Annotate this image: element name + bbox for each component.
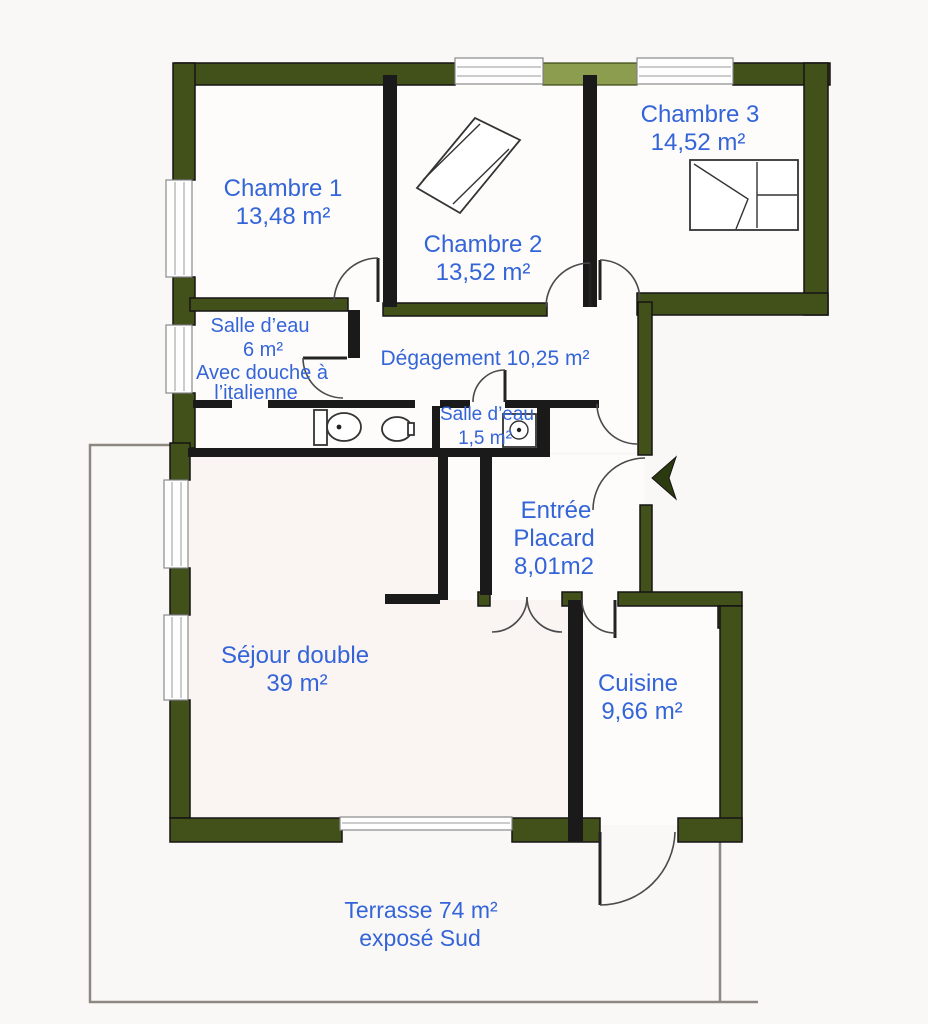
room-note2-salle-deau-6: l’italienne: [214, 382, 297, 404]
room-label-chambre2: Chambre 2: [424, 231, 543, 258]
room-area-salle-deau-15: 1,5 m²: [458, 428, 512, 449]
room-area-cuisine: 9,66 m²: [601, 698, 682, 725]
room-label-chambre1: Chambre 1: [224, 175, 343, 202]
room-label-placard: Placard: [513, 525, 594, 552]
floor-plan: Chambre 1 13,48 m² Chambre 2 13,52 m² Ch…: [0, 0, 928, 1024]
room-label-chambre3: Chambre 3: [641, 101, 760, 128]
room-label-entree: Entrée: [521, 497, 592, 524]
room-note-terrasse: exposé Sud: [359, 925, 480, 951]
bed-icon: [690, 160, 798, 230]
room-label-salle-deau-15: Salle d’eau: [440, 404, 534, 425]
room-area-chambre2: 13,52 m²: [436, 259, 531, 286]
room-area-chambre3: 14,52 m²: [651, 129, 746, 156]
room-note1-salle-deau-6: Avec douche à: [196, 362, 329, 384]
room-label-cuisine: Cuisine: [598, 670, 678, 697]
room-area-salle-deau-6: 6 m²: [243, 339, 283, 361]
room-area-chambre1: 13,48 m²: [236, 203, 331, 230]
room-label-sejour: Séjour double: [221, 642, 369, 669]
room-label-salle-deau-6: Salle d’eau: [211, 315, 310, 337]
room-label-terrasse: Terrasse 74 m²: [344, 897, 498, 923]
room-area-sejour: 39 m²: [266, 670, 327, 697]
room-label-degagement: Dégagement 10,25 m²: [381, 347, 590, 370]
room-area-entree: 8,01m2: [514, 553, 594, 580]
